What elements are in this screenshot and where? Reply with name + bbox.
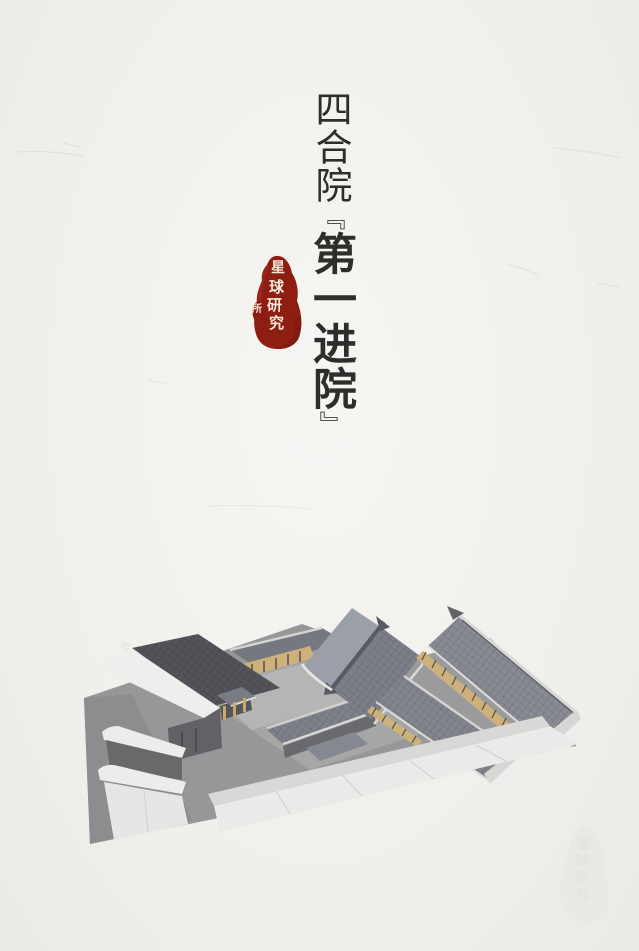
title-emphasis: 第一进院: [305, 231, 356, 411]
seal-watermark: 星 球 研 究: [556, 824, 614, 924]
page-title: 四合院『第一进院』: [301, 90, 359, 450]
title-close-bracket: 』: [315, 411, 345, 438]
watermark-char: 球: [576, 855, 589, 868]
watermark-char: 星: [578, 838, 590, 850]
seal-char-suo: 所: [252, 305, 262, 315]
seal-char-jiu: 究: [269, 316, 284, 331]
watermark-char: 究: [576, 889, 589, 902]
siheyuan-3d-model: [70, 598, 610, 858]
title-open-bracket: 『: [315, 204, 345, 231]
title-prefix: 四合院: [309, 90, 352, 204]
seal-char-qiu: 球: [269, 280, 284, 295]
seal-char-yan: 研: [267, 298, 282, 313]
seal-char-xing: 星: [271, 261, 285, 275]
poster-page: { "page": { "background_color": "#f1f0ec…: [0, 0, 639, 951]
watermark-char: 研: [575, 872, 588, 885]
studio-seal: 星 球 研 究 所: [251, 253, 305, 351]
